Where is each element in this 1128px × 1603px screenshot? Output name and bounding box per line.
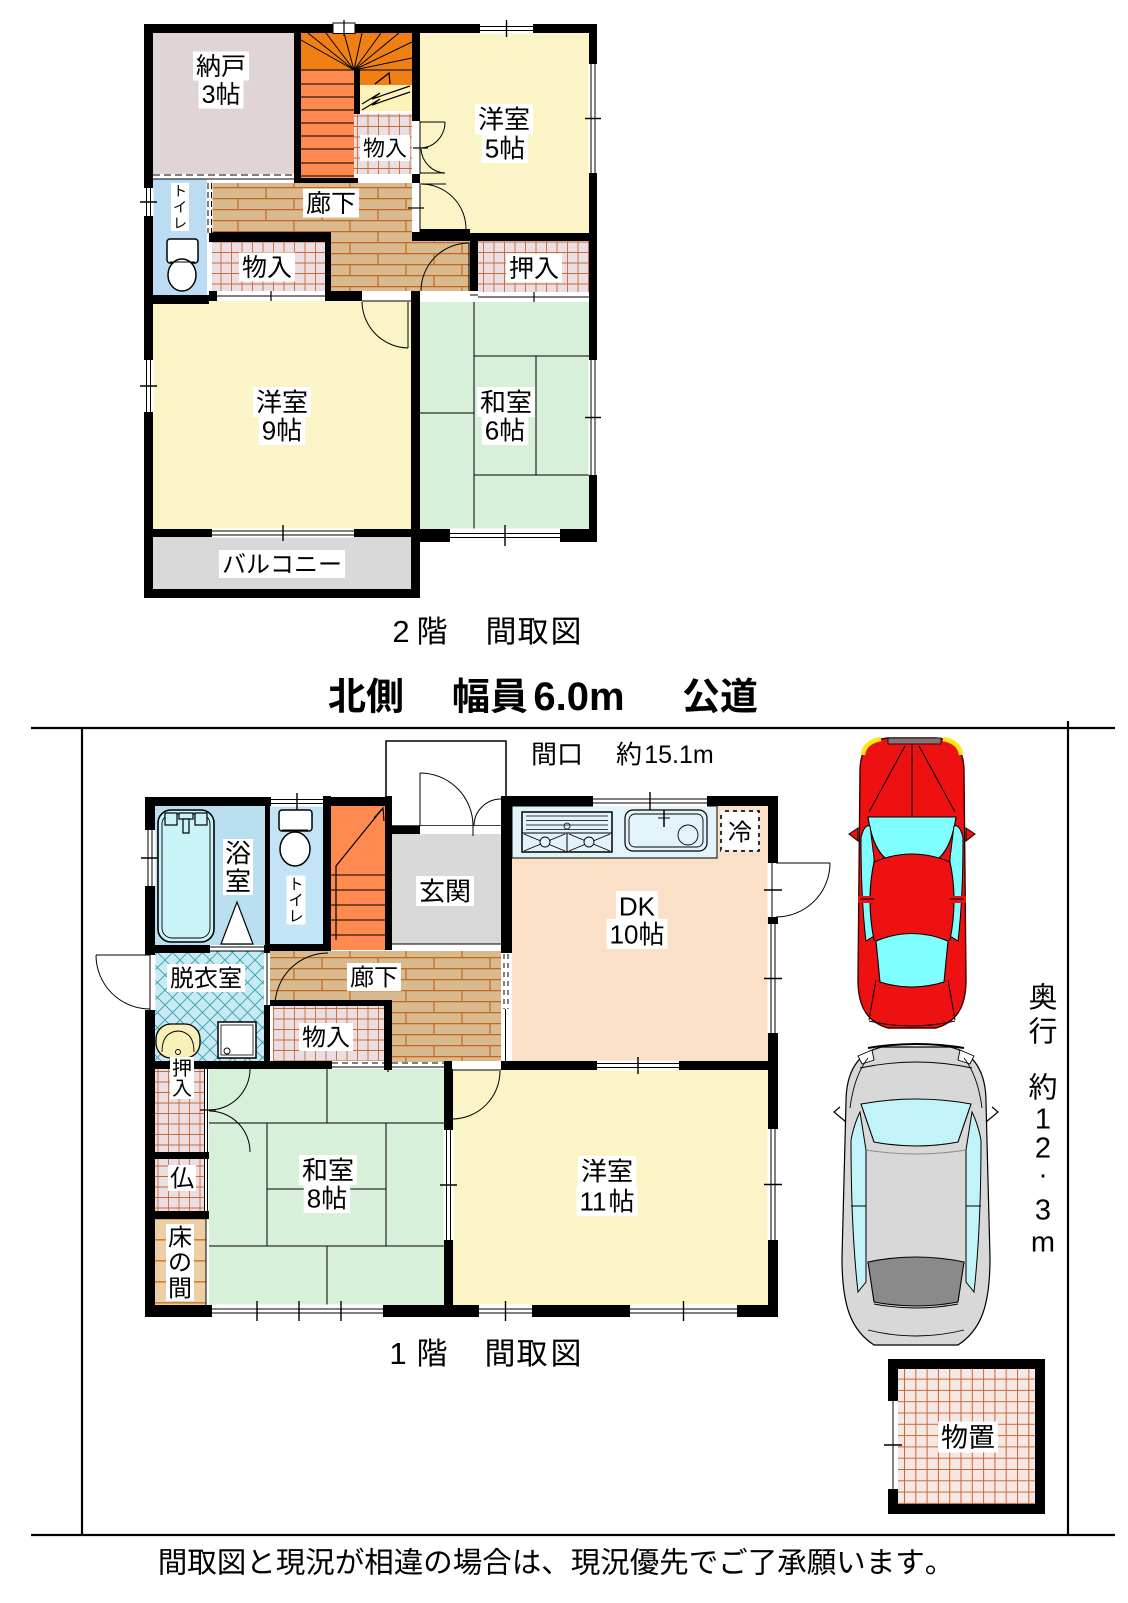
- svg-text:5: 5: [485, 133, 499, 163]
- svg-text:8: 8: [307, 1183, 321, 1213]
- svg-text:15.1m: 15.1m: [644, 741, 713, 769]
- svg-text:10: 10: [610, 919, 639, 949]
- svg-text:3: 3: [1035, 1194, 1051, 1226]
- svg-text:3: 3: [202, 81, 216, 109]
- svg-text:1: 1: [1035, 1103, 1051, 1135]
- svg-text:DK: DK: [619, 891, 656, 921]
- svg-text:1: 1: [389, 1336, 406, 1371]
- svg-text:2: 2: [392, 614, 409, 649]
- svg-text:.: .: [1039, 1152, 1047, 1184]
- svg-text:9: 9: [262, 415, 276, 445]
- svg-text:m: m: [1031, 1226, 1055, 1258]
- svg-text:11: 11: [580, 1186, 607, 1216]
- svg-text:6.0m: 6.0m: [533, 675, 624, 719]
- svg-text:6: 6: [485, 415, 499, 445]
